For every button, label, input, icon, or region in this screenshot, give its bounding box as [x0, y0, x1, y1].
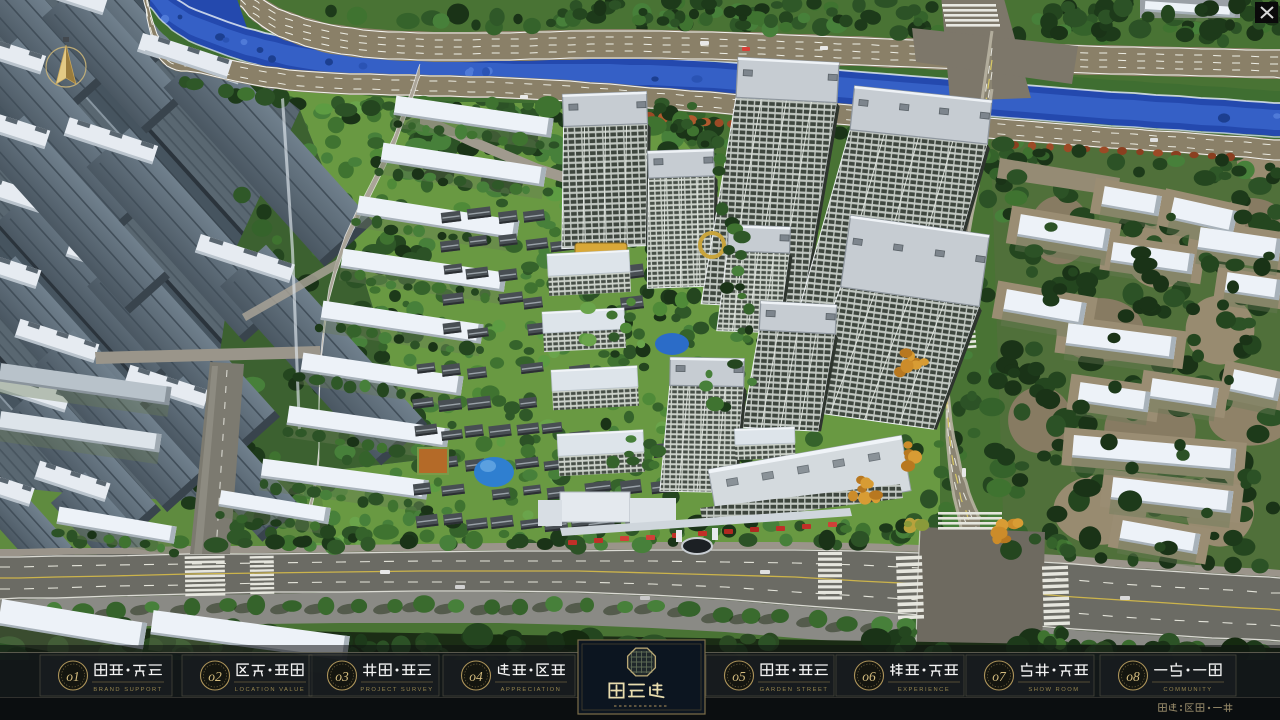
svg-text:o4: o4 — [469, 669, 483, 684]
svg-text:LOCATION VALUE: LOCATION VALUE — [235, 687, 305, 693]
svg-text:o8: o8 — [1126, 669, 1140, 684]
svg-text:GARDEN STREET: GARDEN STREET — [760, 687, 829, 693]
svg-text:o3: o3 — [335, 669, 349, 684]
svg-text:SHOW ROOM: SHOW ROOM — [1028, 687, 1079, 693]
svg-text:o7: o7 — [992, 669, 1007, 684]
svg-text:APPRECIATION: APPRECIATION — [501, 687, 562, 693]
svg-text:o5: o5 — [732, 669, 746, 684]
svg-text:PROJECT SURVEY: PROJECT SURVEY — [360, 687, 433, 693]
svg-text:o6: o6 — [862, 669, 876, 684]
svg-text:o2: o2 — [208, 669, 222, 684]
svg-text:BRAND SUPPORT: BRAND SUPPORT — [93, 687, 162, 693]
svg-text:COMMUNITY: COMMUNITY — [1163, 687, 1212, 693]
svg-text:EXPERIENCE: EXPERIENCE — [898, 687, 950, 693]
svg-text:o1: o1 — [66, 669, 80, 684]
